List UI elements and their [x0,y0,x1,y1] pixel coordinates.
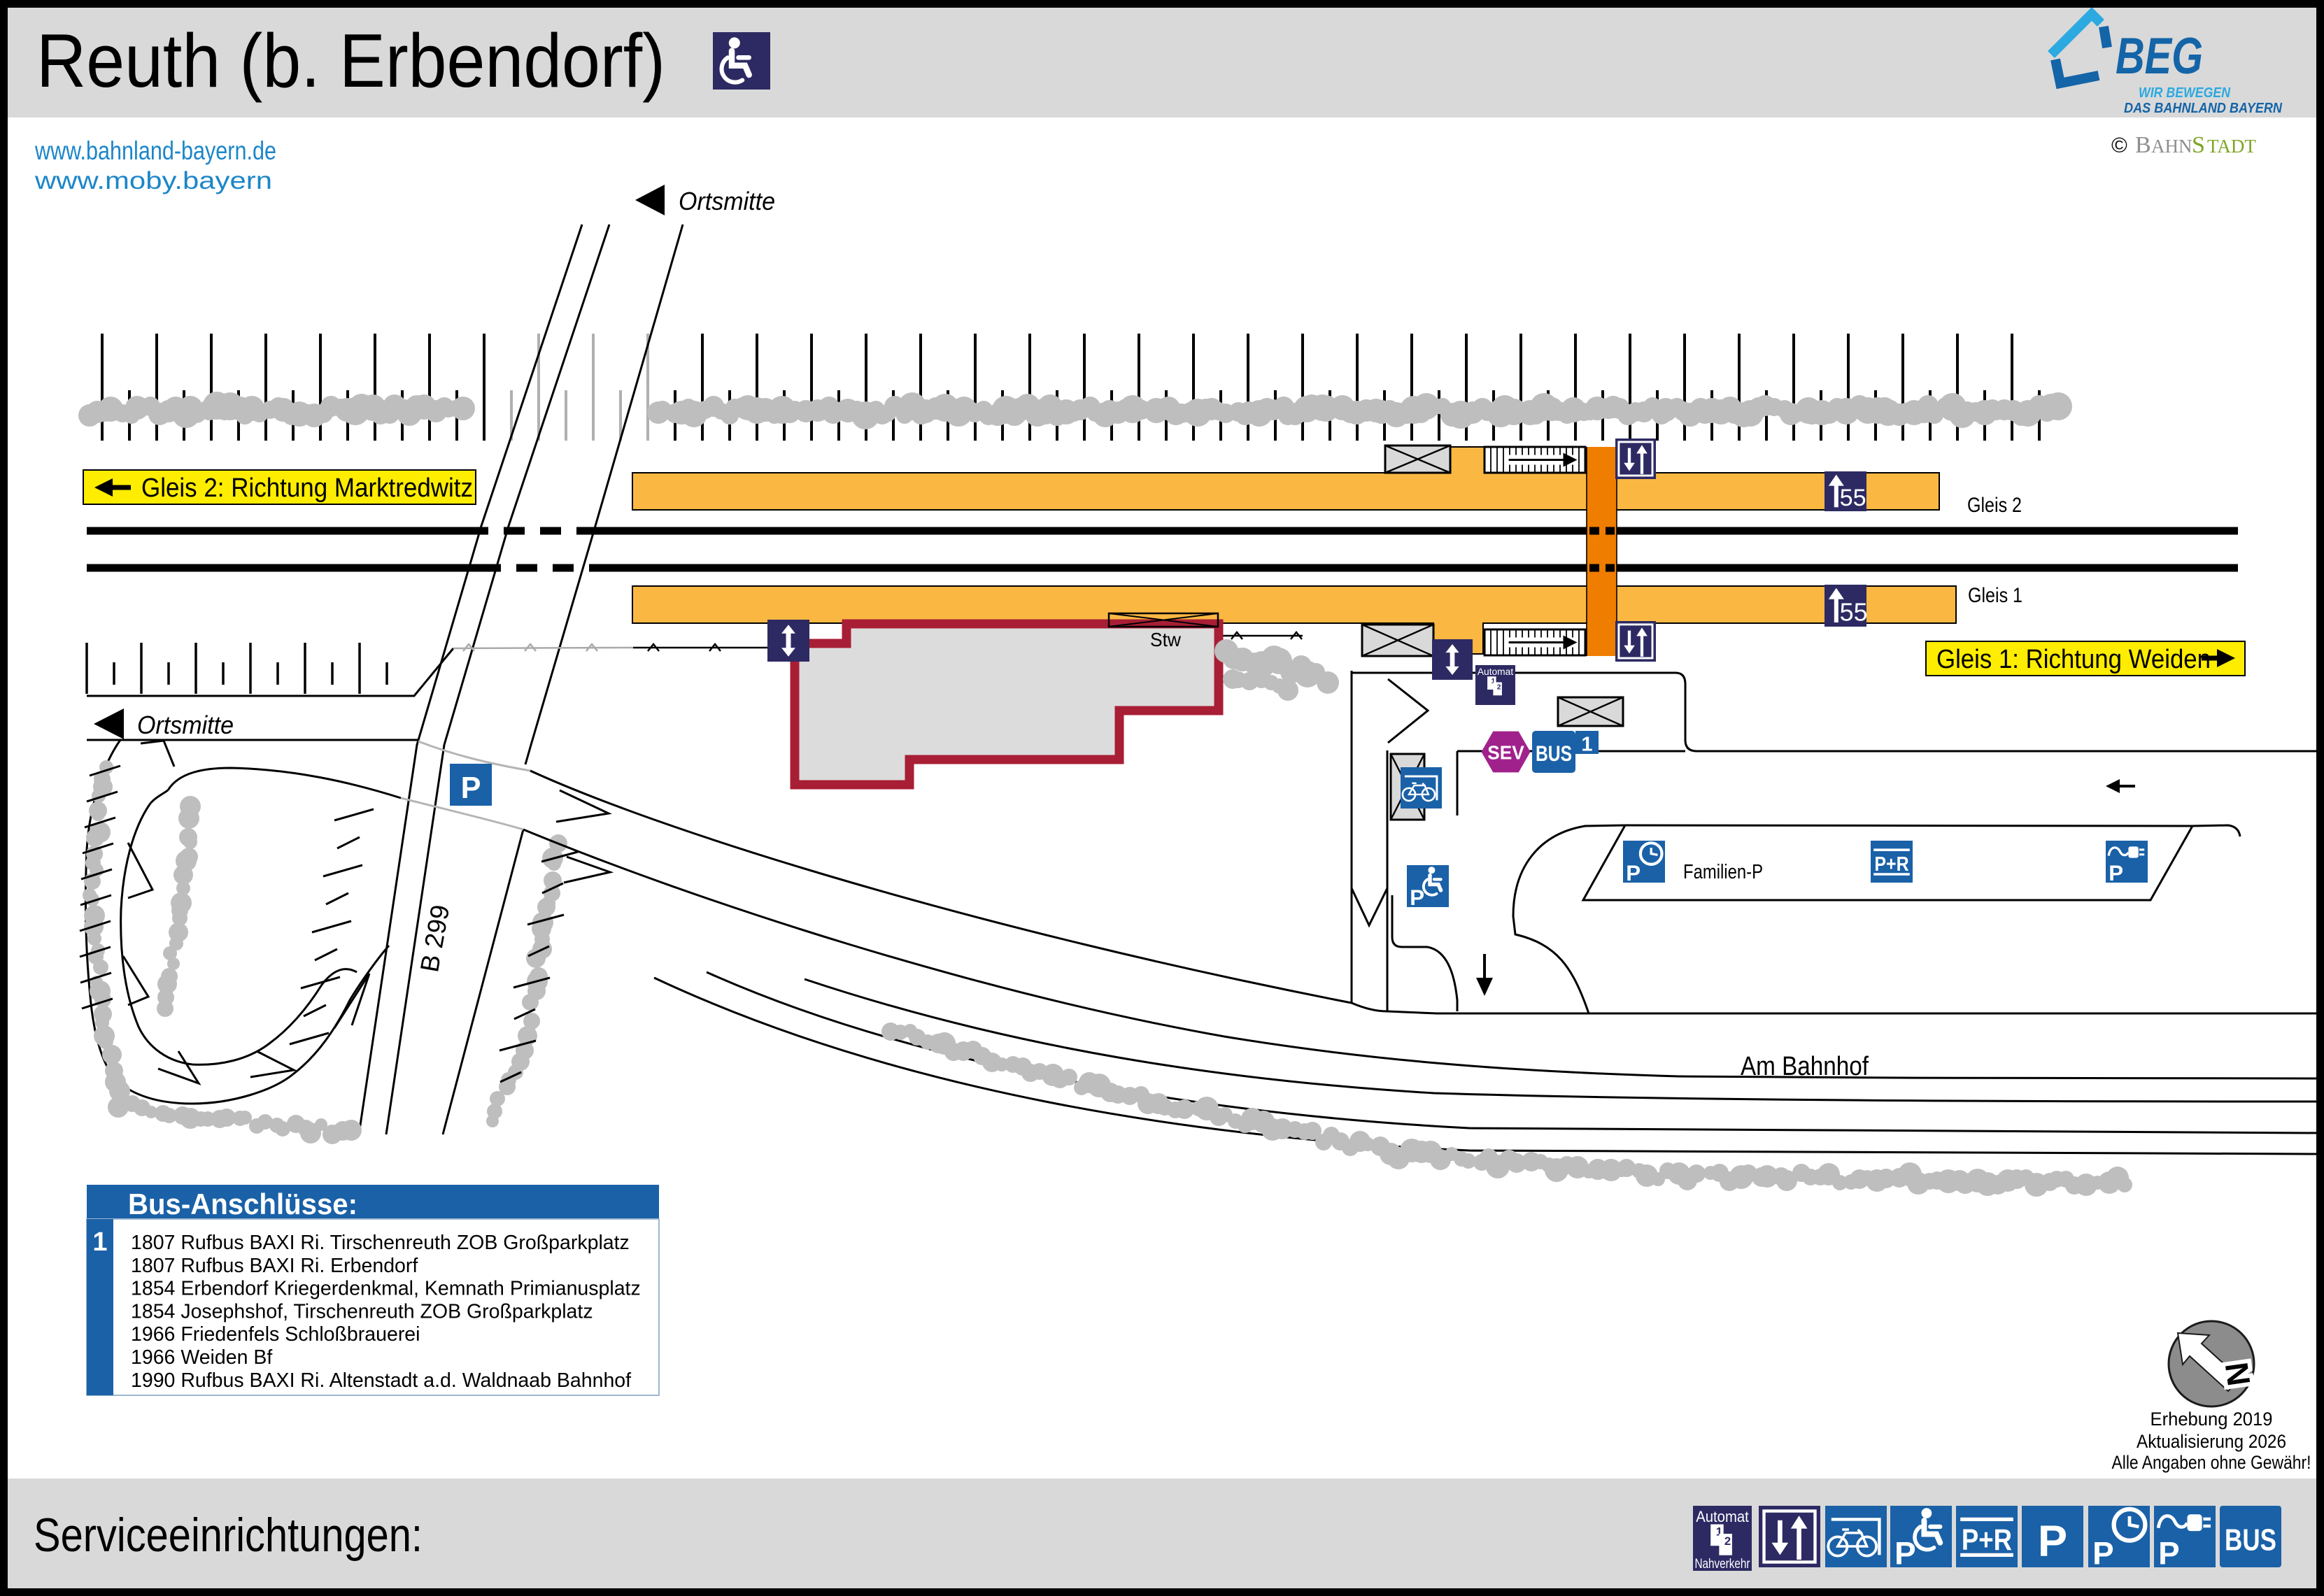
svg-text:Aktualisierung 2026: Aktualisierung 2026 [2137,1431,2286,1452]
svg-text:©: © [2111,133,2127,157]
svg-text:Ortsmitte: Ortsmitte [679,187,775,215]
svg-text:2: 2 [1497,683,1501,691]
svg-text:BEG: BEG [2116,28,2203,85]
svg-text:Gleis 2: Gleis 2 [1967,494,2022,517]
svg-text:www.moby.bayern: www.moby.bayern [34,167,272,194]
svg-text:P+R: P+R [1962,1523,2012,1556]
svg-text:Serviceeinrichtungen:: Serviceeinrichtungen: [34,1509,423,1562]
svg-text:B: B [2135,132,2151,158]
svg-text:www.bahnland-bayern.de: www.bahnland-bayern.de [34,136,276,165]
svg-text:Alle Angaben ohne Gewähr!: Alle Angaben ohne Gewähr! [2112,1452,2311,1473]
svg-text:1: 1 [1581,733,1592,755]
svg-text:TADT: TADT [2207,136,2256,157]
svg-text:BUS: BUS [2225,1523,2276,1557]
svg-text:P: P [2092,1536,2114,1572]
svg-text:1: 1 [92,1227,107,1257]
svg-text:1990 Rufbus BAXI Ri. Altenstad: 1990 Rufbus BAXI Ri. Altenstadt a.d. Wal… [131,1369,631,1392]
svg-text:1966 Friedenfels Schloßbrauere: 1966 Friedenfels Schloßbrauerei [131,1323,420,1346]
svg-text:Gleis 1: Richtung Weiden: Gleis 1: Richtung Weiden [1936,645,2211,674]
svg-text:Erhebung 2019: Erhebung 2019 [2151,1409,2273,1430]
svg-text:AHN: AHN [2151,136,2192,157]
svg-text:P: P [2109,861,2123,885]
svg-text:Stw: Stw [1150,629,1182,650]
svg-text:Gleis 1: Gleis 1 [1968,584,2022,607]
svg-text:SEV: SEV [1487,742,1524,764]
svg-text:Reuth (b. Erbendorf): Reuth (b. Erbendorf) [36,18,665,104]
svg-text:Familien-P: Familien-P [1683,861,1763,883]
svg-text:P+R: P+R [1874,853,1908,876]
svg-text:1807 Rufbus BAXI Ri. Erbendorf: 1807 Rufbus BAXI Ri. Erbendorf [131,1255,418,1277]
svg-text:Automat: Automat [1478,667,1514,677]
svg-text:1807 Rufbus BAXI Ri. Tirschenr: 1807 Rufbus BAXI Ri. Tirschenreuth ZOB G… [131,1232,630,1254]
svg-text:55: 55 [1840,598,1868,627]
svg-text:Ortsmitte: Ortsmitte [137,711,234,739]
svg-text:P: P [2038,1517,2067,1566]
svg-text:P: P [2158,1536,2180,1572]
svg-text:P: P [1626,861,1641,885]
svg-text:1854 Josephshof, Tirschenreuth: 1854 Josephshof, Tirschenreuth ZOB Großp… [131,1300,593,1323]
svg-text:P: P [461,771,481,805]
svg-text:1854 Erbendorf Kriegerdenkmal,: 1854 Erbendorf Kriegerdenkmal, Kemnath P… [131,1278,641,1300]
svg-text:WIR BEWEGEN: WIR BEWEGEN [2139,85,2230,101]
svg-text:Nahverkehr: Nahverkehr [1695,1557,1750,1572]
svg-text:DAS BAHNLAND BAYERN: DAS BAHNLAND BAYERN [2124,100,2283,116]
svg-text:S: S [2192,132,2205,158]
svg-text:P: P [1410,885,1424,910]
svg-text:Am Bahnhof: Am Bahnhof [1741,1052,1869,1081]
svg-text:Gleis 2: Richtung Marktredwitz: Gleis 2: Richtung Marktredwitz [141,473,473,503]
svg-text:1966 Weiden Bf: 1966 Weiden Bf [131,1346,272,1369]
svg-text:Automat: Automat [1696,1508,1749,1525]
svg-text:Bus-Anschlüsse:: Bus-Anschlüsse: [128,1188,357,1220]
svg-text:P: P [1894,1536,1916,1572]
svg-text:55: 55 [1840,485,1866,511]
svg-text:2: 2 [1724,1534,1731,1548]
svg-text:BUS: BUS [1536,741,1572,766]
